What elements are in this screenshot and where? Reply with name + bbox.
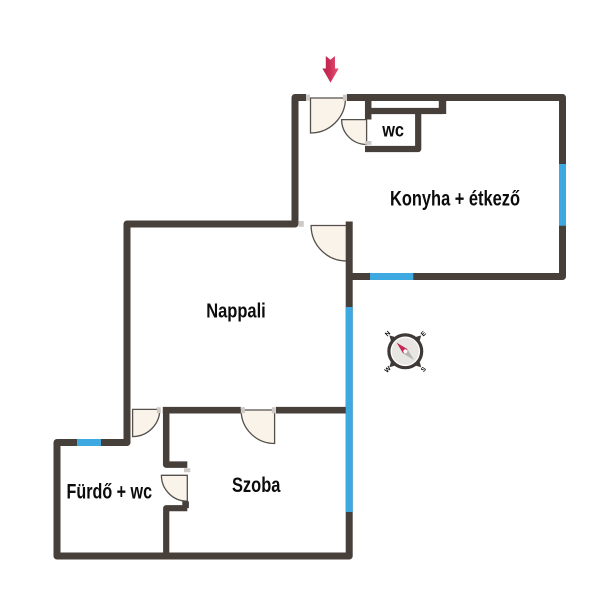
svg-text:S: S: [420, 365, 428, 373]
svg-text:Fürdő + wc: Fürdő + wc: [67, 481, 153, 504]
svg-text:wc: wc: [381, 121, 404, 142]
svg-text:Nappali: Nappali: [206, 300, 266, 323]
svg-text:Szoba: Szoba: [232, 473, 281, 497]
svg-text:E: E: [420, 330, 428, 338]
svg-text:Konyha + étkező: Konyha + étkező: [390, 188, 520, 211]
